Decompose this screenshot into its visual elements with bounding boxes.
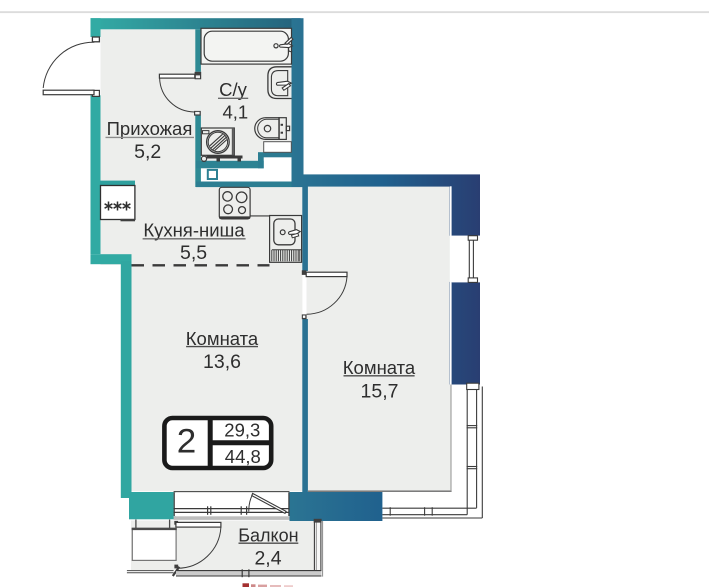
svg-text:13,6: 13,6 (203, 351, 241, 373)
svg-text:4,1: 4,1 (222, 102, 248, 123)
svg-text:5,2: 5,2 (134, 141, 161, 163)
svg-text:Кухня-ниша: Кухня-ниша (143, 220, 245, 241)
svg-text:Комната: Комната (343, 357, 416, 378)
svg-text:Балкон: Балкон (238, 525, 298, 545)
svg-text:2: 2 (177, 423, 197, 461)
svg-text:Комната: Комната (186, 328, 259, 349)
svg-text:15,7: 15,7 (361, 380, 399, 402)
svg-text:С/у: С/у (219, 79, 248, 100)
svg-text:2,4: 2,4 (254, 547, 281, 569)
svg-text:Прихожая: Прихожая (107, 118, 193, 139)
svg-text:29,3: 29,3 (224, 420, 260, 441)
svg-text:44,8: 44,8 (225, 446, 261, 467)
svg-text:5,5: 5,5 (180, 242, 207, 264)
